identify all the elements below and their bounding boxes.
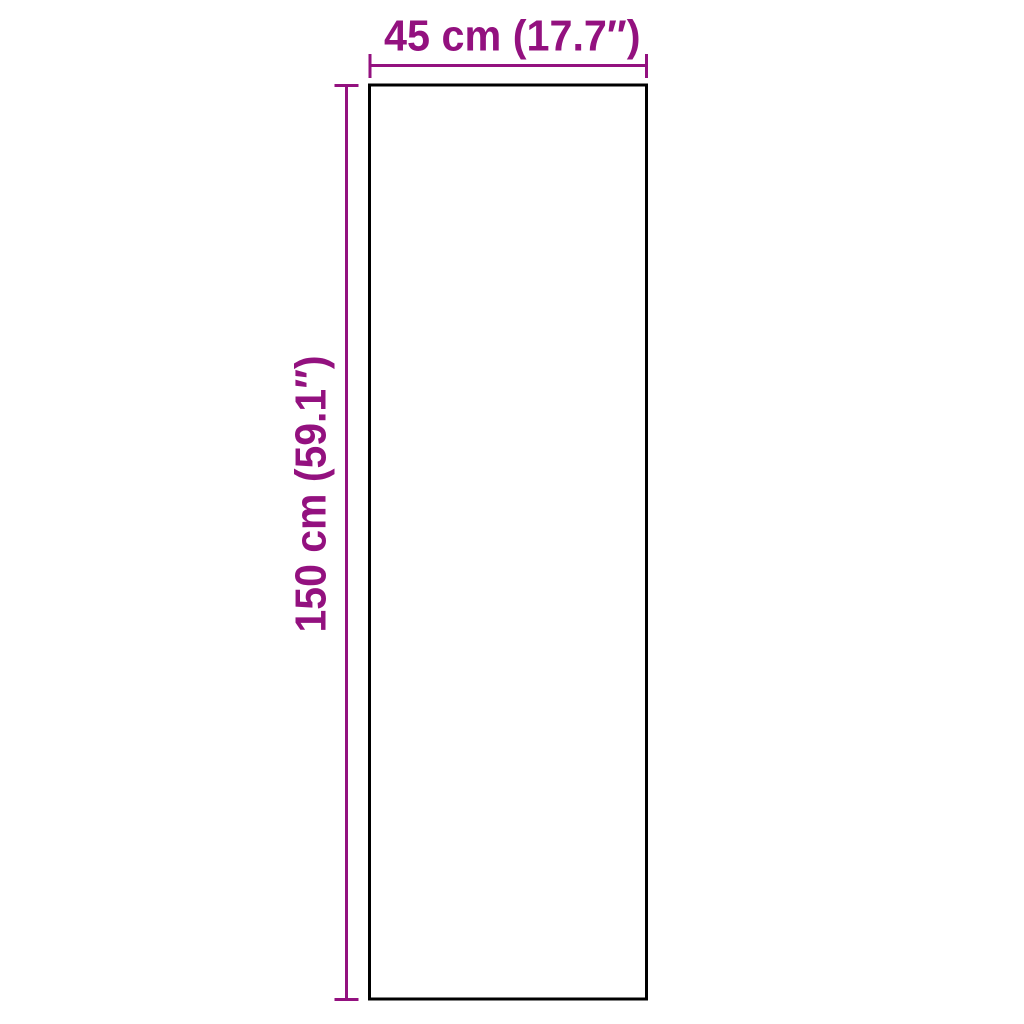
svg-text:150 cm (59.1″): 150 cm (59.1″) xyxy=(287,356,336,633)
svg-text:45 cm (17.7″): 45 cm (17.7″) xyxy=(384,12,641,61)
